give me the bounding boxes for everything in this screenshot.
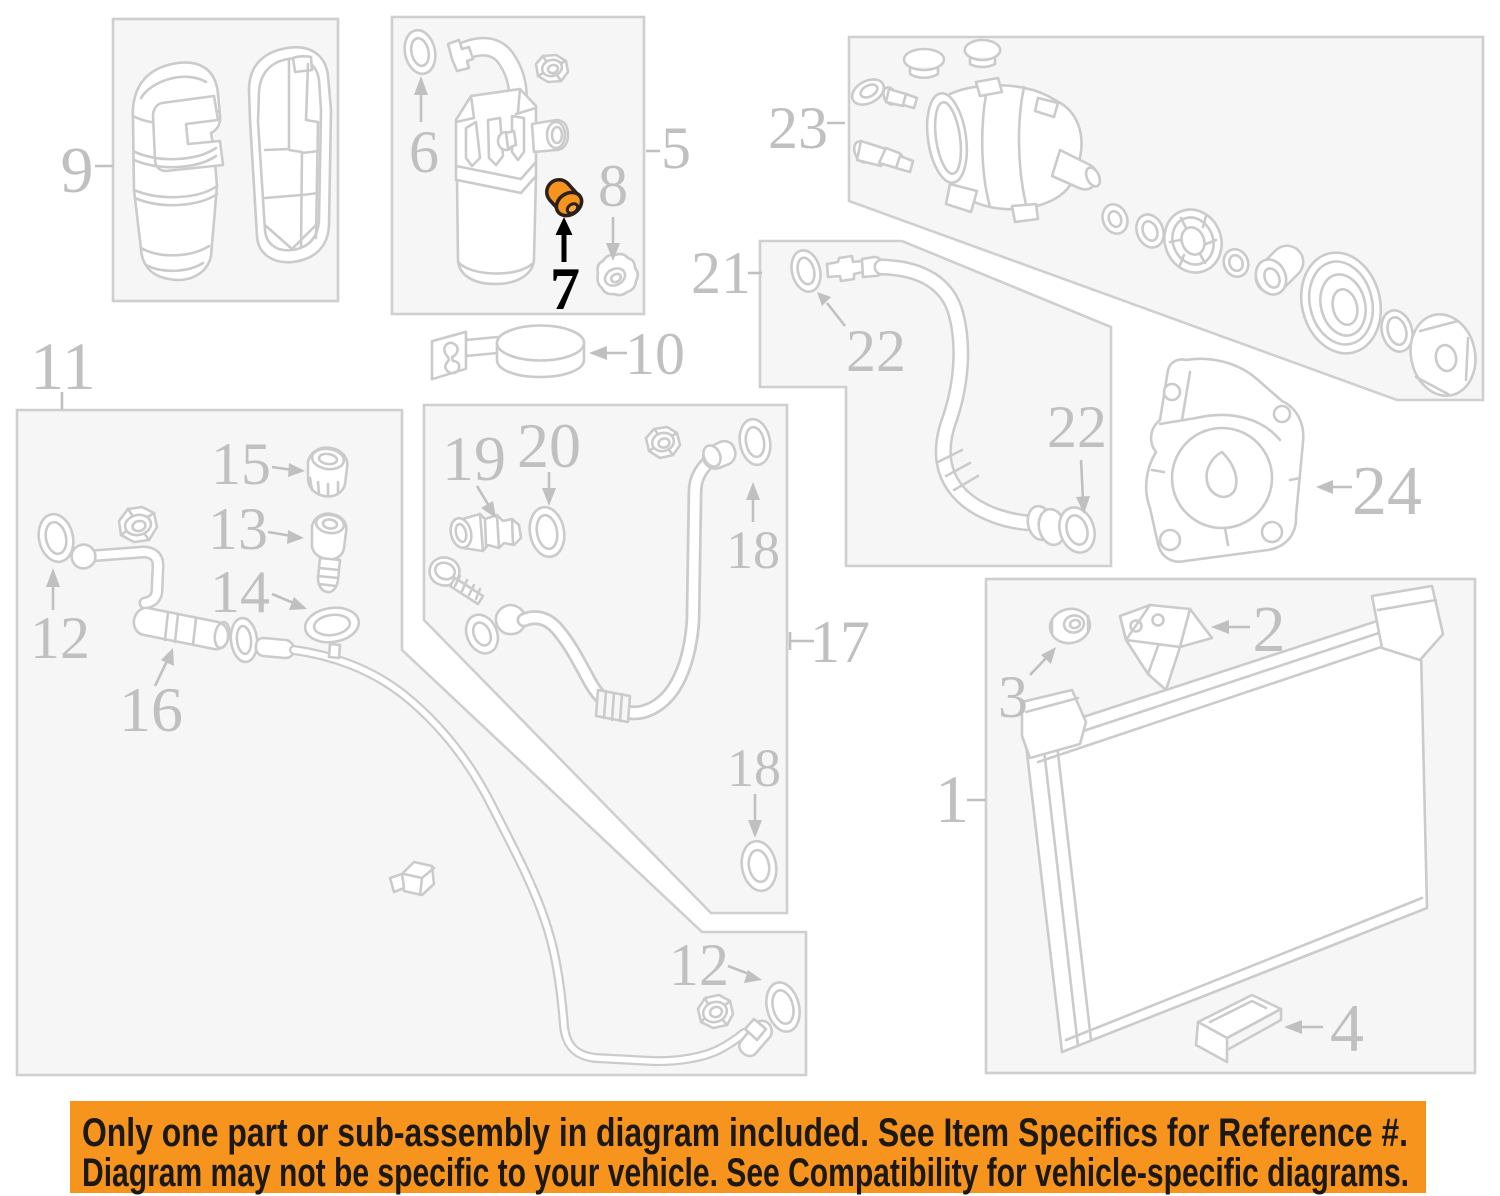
svg-text:16: 16 <box>119 674 183 745</box>
svg-text:14: 14 <box>210 559 270 625</box>
svg-text:5: 5 <box>661 115 691 181</box>
svg-text:17: 17 <box>810 609 870 675</box>
svg-text:20: 20 <box>517 410 581 481</box>
svg-text:Only one part or sub-assembly: Only one part or sub-assembly in diagram… <box>82 1111 1408 1155</box>
svg-text:6: 6 <box>409 119 439 185</box>
svg-text:9: 9 <box>61 134 94 207</box>
svg-text:15: 15 <box>211 431 271 497</box>
svg-text:7: 7 <box>550 256 580 322</box>
svg-text:23: 23 <box>768 95 828 161</box>
svg-text:10: 10 <box>625 321 685 387</box>
svg-text:21: 21 <box>691 240 751 306</box>
svg-text:8: 8 <box>598 153 628 219</box>
svg-text:1: 1 <box>935 761 969 837</box>
svg-text:12: 12 <box>30 605 90 671</box>
svg-text:22: 22 <box>846 318 906 384</box>
svg-text:18: 18 <box>727 738 781 798</box>
svg-text:Diagram may not be specific to: Diagram may not be specific to your vehi… <box>82 1151 1409 1195</box>
svg-text:12: 12 <box>669 932 729 998</box>
svg-text:18: 18 <box>726 520 780 580</box>
svg-text:2: 2 <box>1253 593 1286 666</box>
svg-text:22: 22 <box>1047 394 1107 460</box>
svg-text:3: 3 <box>998 664 1028 730</box>
svg-text:19: 19 <box>442 423 506 494</box>
svg-text:13: 13 <box>208 496 268 562</box>
svg-text:24: 24 <box>1352 453 1422 530</box>
svg-text:4: 4 <box>1330 990 1364 1066</box>
